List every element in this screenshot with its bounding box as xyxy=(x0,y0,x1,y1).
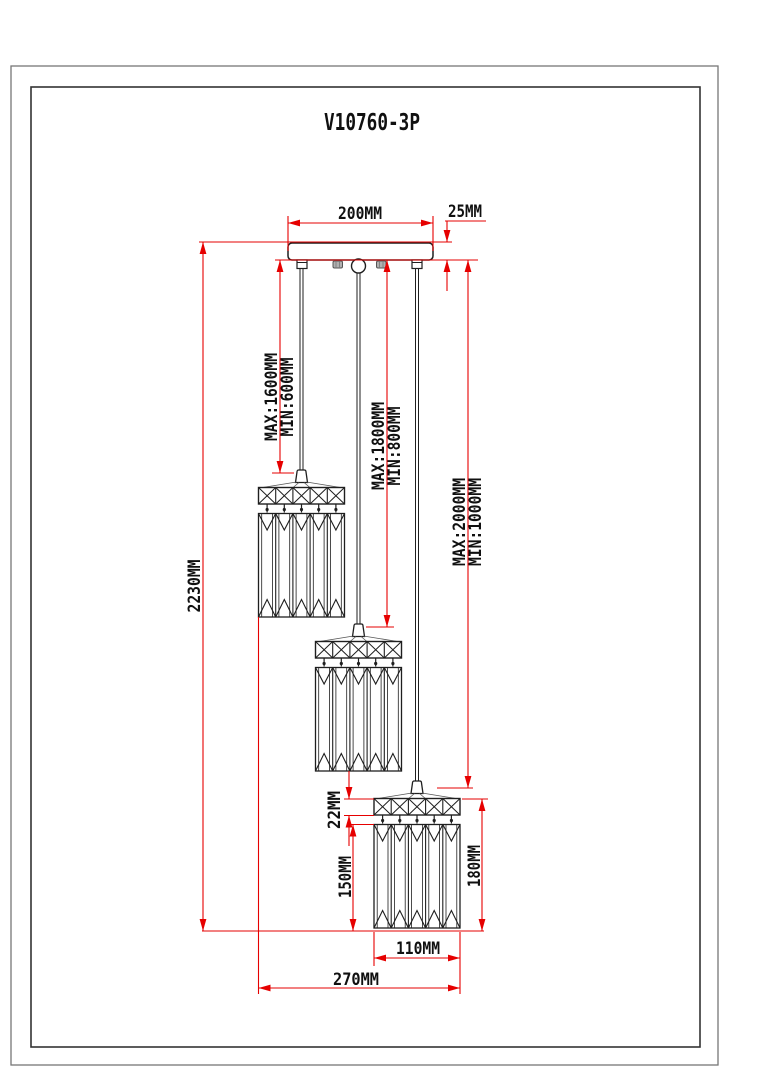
pendant-shade-1 xyxy=(259,470,345,617)
dim-pendant1-min: MIN:600MM xyxy=(278,358,298,437)
inner-border xyxy=(31,87,700,1047)
pendant-shade-3 xyxy=(374,781,460,928)
cord-grip-left xyxy=(297,260,307,269)
dim-canopy-width: 200MM xyxy=(338,204,382,224)
dim-overall-height: 2230MM xyxy=(185,560,205,613)
dim-pendant2-min: MIN:800MM xyxy=(385,407,405,486)
suspension-cord-1 xyxy=(300,269,303,471)
ceiling-canopy xyxy=(288,243,433,260)
dim-shade-prism-height: 150MM xyxy=(336,856,356,898)
pendant-lamp-dimension-drawing: V10760-3P xyxy=(0,0,763,1080)
dim-pendant3-min: MIN:1000MM xyxy=(466,478,486,566)
dim-shade-band-height: 22MM xyxy=(325,791,345,829)
pendant-shade-2 xyxy=(316,624,402,771)
fixture-drawing xyxy=(259,243,461,928)
dim-shade-width: 110MM xyxy=(396,939,440,959)
dim-canopy-thickness: 25MM xyxy=(448,202,482,222)
dim-cluster-spread: 270MM xyxy=(333,970,379,990)
mounting-screw-left xyxy=(333,261,343,268)
dim-shade-total-height: 180MM xyxy=(465,845,485,887)
suspension-cord-2 xyxy=(357,273,360,624)
technical-drawing-page: V10760-3P xyxy=(0,0,763,1080)
mounting-screw-right xyxy=(377,261,387,268)
cord-grip-right xyxy=(412,260,422,269)
center-hanging-ring xyxy=(352,259,366,273)
suspension-cord-3 xyxy=(416,269,419,782)
drawing-title: V10760-3P xyxy=(324,110,420,136)
